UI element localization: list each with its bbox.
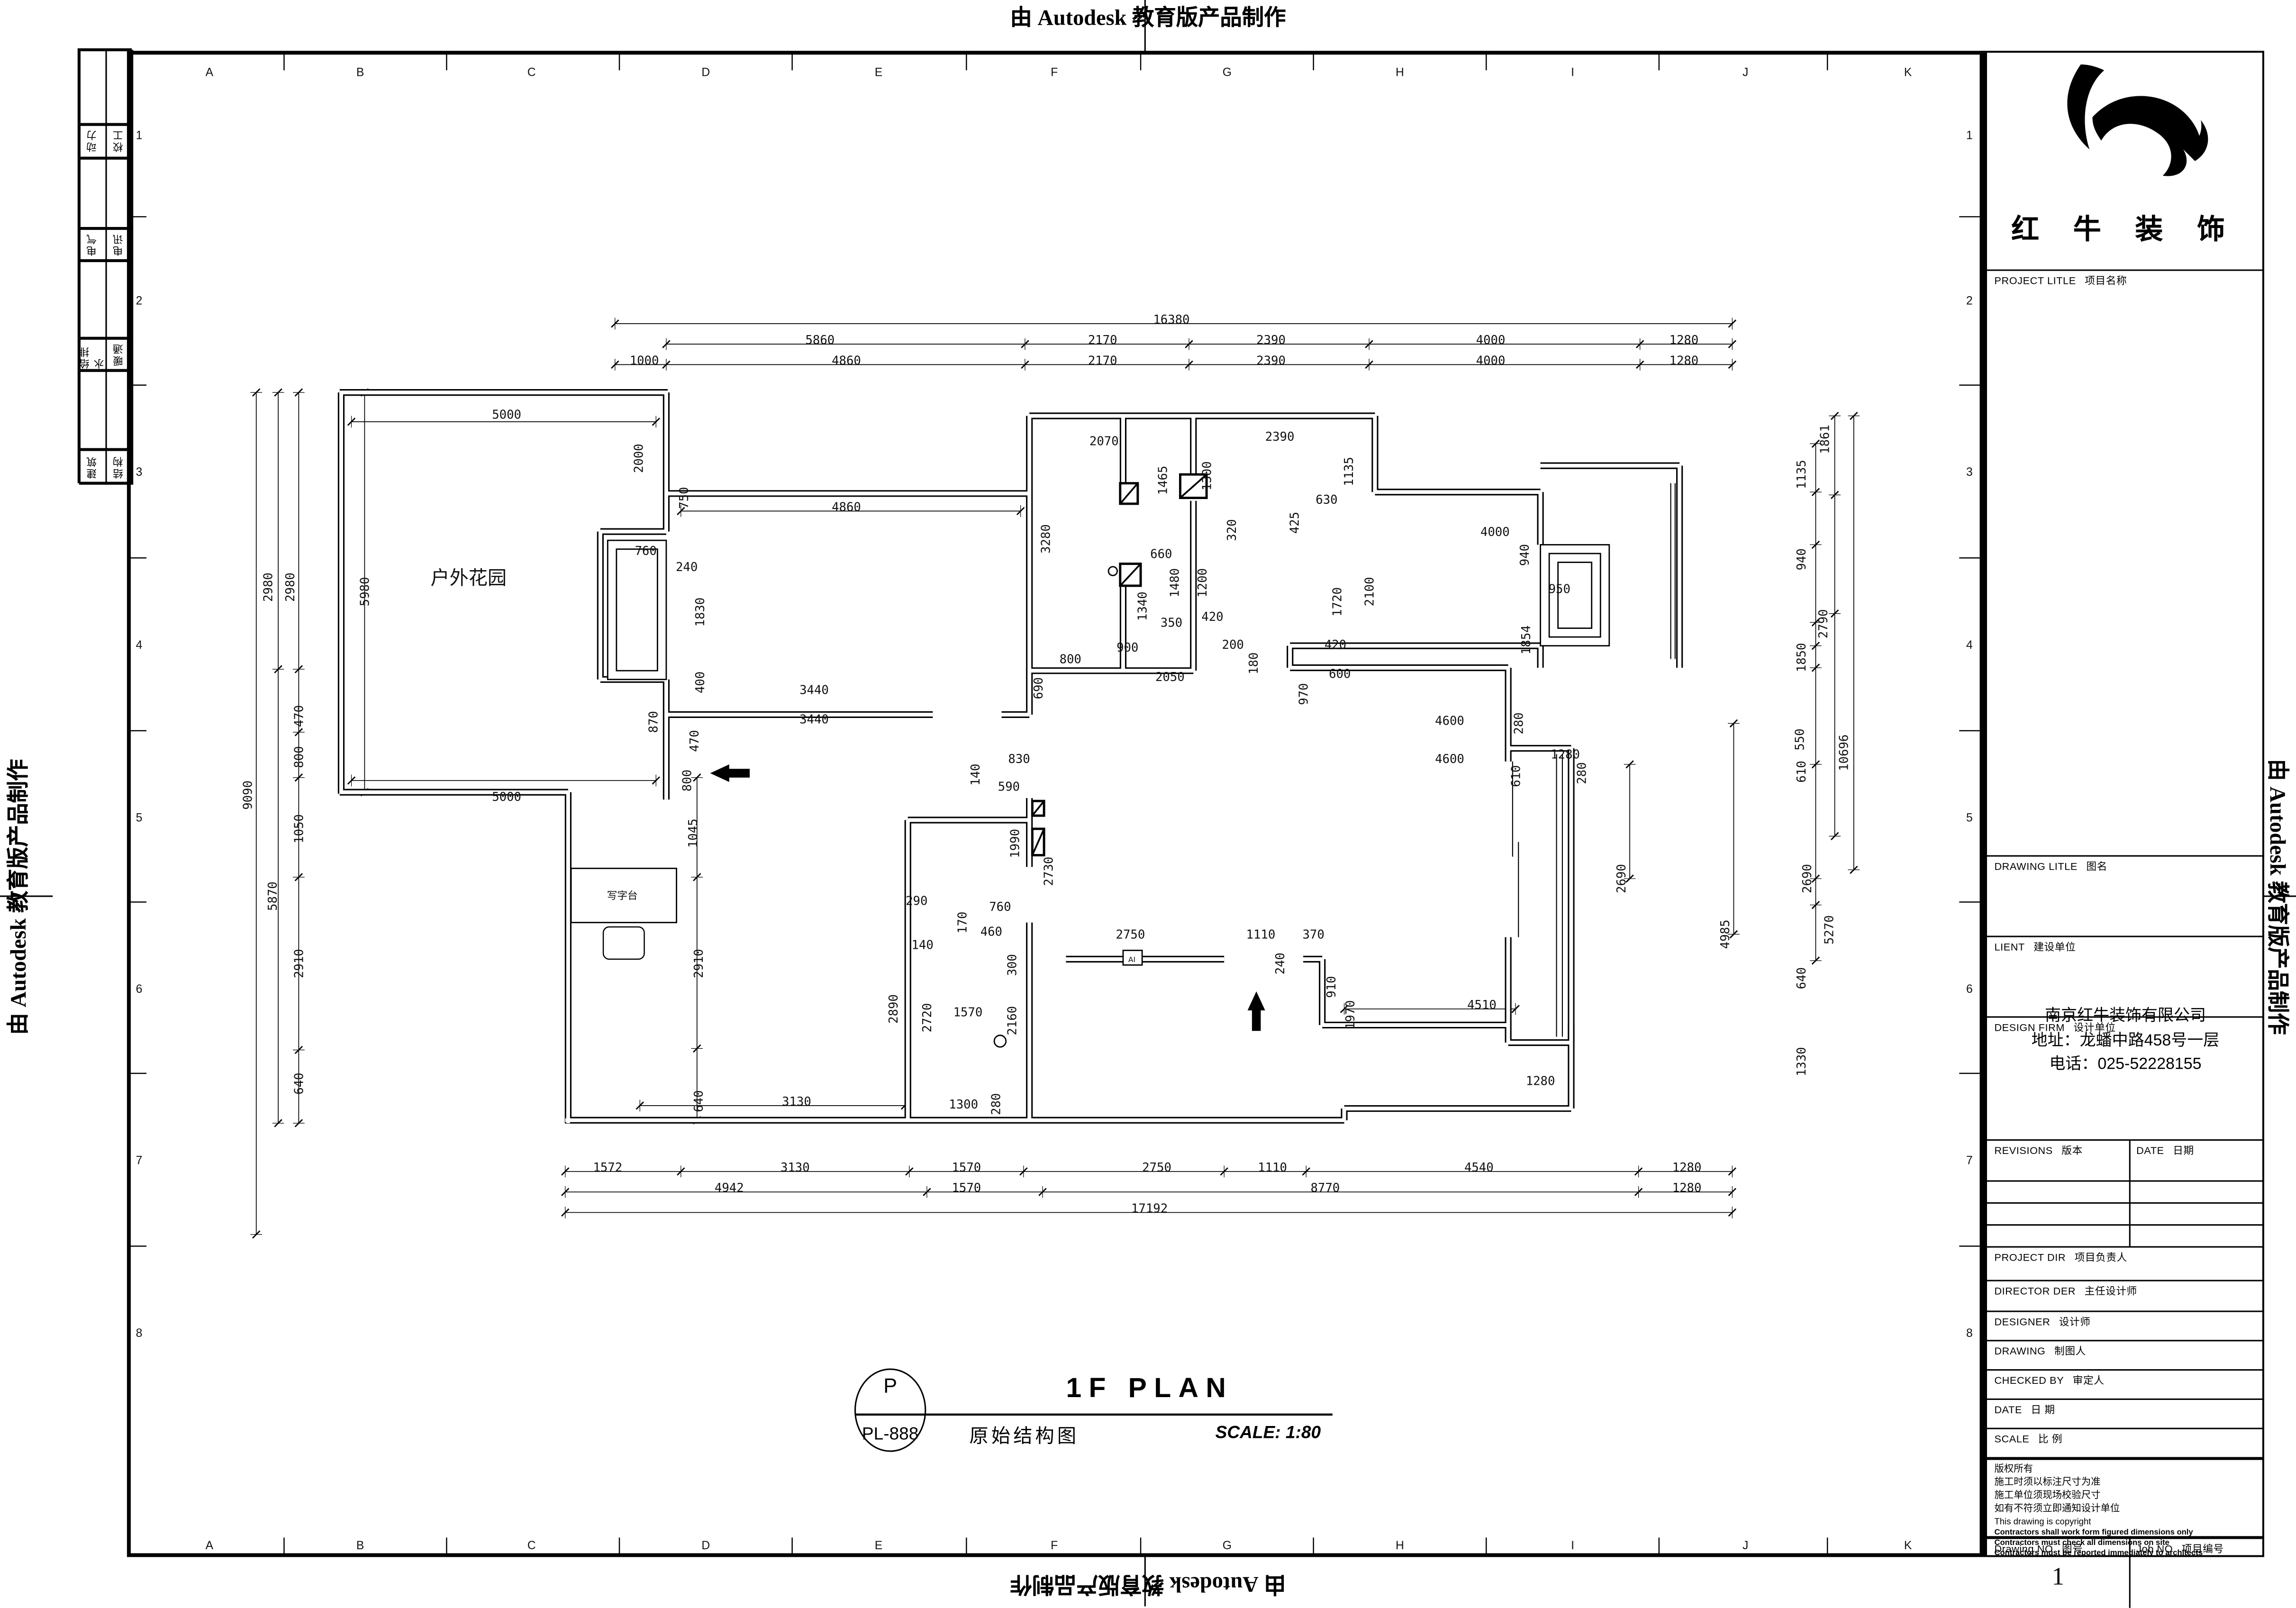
grid-number: 6 xyxy=(136,983,143,996)
dimension-label: 640 xyxy=(1795,967,1809,989)
discipline-label: 校工 xyxy=(105,125,133,158)
row-label-en: Drawing NO xyxy=(1994,1545,2053,1555)
grid-number: 4 xyxy=(136,639,143,652)
dimension-label: 1854 xyxy=(1519,625,1534,654)
dimension-label: 1300 xyxy=(1200,461,1214,491)
row-drawing-no: Drawing NO图号 Job NO项目编号 1 xyxy=(1987,1536,2262,1608)
autodesk-banner-right: 由 Autodesk 教育版产品制作 xyxy=(2263,751,2294,1044)
dimension-label: 5870 xyxy=(266,881,280,911)
dimension-label: 1280 xyxy=(1670,333,1699,347)
copyright-line: 版权所有 xyxy=(1994,1464,2262,1477)
dimension-label: 2980 xyxy=(283,572,298,602)
row-label-en: Job NO xyxy=(2136,1545,2173,1555)
dimension-label: 830 xyxy=(1008,752,1030,766)
grid-number: 7 xyxy=(1966,1154,1973,1167)
dimension-label: 2890 xyxy=(887,994,901,1024)
autodesk-banner-top: 由 Autodesk 教育版产品制作 xyxy=(0,1,2296,32)
dimension-label: 16380 xyxy=(1153,313,1189,327)
row-label-cn: 建设单位 xyxy=(2033,943,2076,954)
dimension-label: 420 xyxy=(1325,638,1346,652)
dimension-label: 630 xyxy=(1316,493,1337,507)
discipline-label: 给排水 xyxy=(79,338,107,371)
dimension-label: 1465 xyxy=(1156,466,1171,495)
dimension-label: 240 xyxy=(1273,953,1288,974)
discipline-cell-empty xyxy=(79,371,107,450)
row-scale: SCALE比 例 xyxy=(1987,1428,2262,1457)
dimension-label: 280 xyxy=(1512,712,1526,734)
dimension-label: 10696 xyxy=(1837,735,1851,771)
dimension-label: 1970 xyxy=(1343,1000,1358,1029)
grid-number: 5 xyxy=(1966,811,1973,824)
dimension-label: 240 xyxy=(676,560,698,574)
sheet-title-cn: 原始结构图 xyxy=(970,1420,1080,1448)
dimension-label: 2170 xyxy=(1088,333,1117,347)
company-name: 南京红牛装饰有限公司 xyxy=(1993,1005,2258,1029)
revision-row-empty xyxy=(1987,1202,2262,1224)
grid-letter: K xyxy=(1904,1539,1912,1552)
dimension-label: 180 xyxy=(1247,653,1261,674)
dimension-label: 940 xyxy=(1518,544,1532,566)
dimension-label: 760 xyxy=(989,900,1011,914)
dimension-label: 1280 xyxy=(1551,748,1580,762)
discipline-cell-empty xyxy=(105,158,133,228)
dimension-label: 1572 xyxy=(593,1161,622,1175)
discipline-table: 动力 校工 电气 电讯 给排水 暖通 建筑 结构 xyxy=(78,48,132,483)
grid-letter: D xyxy=(701,1539,710,1552)
row-designer: DESIGNER设计师 xyxy=(1987,1310,2262,1340)
discipline-cell-empty xyxy=(79,50,107,125)
dimension-label: 1135 xyxy=(1342,457,1356,486)
dimension-label: 950 xyxy=(1549,582,1570,596)
dimension-label: 2690 xyxy=(1615,864,1629,893)
room-label: 写字台 xyxy=(607,890,638,902)
dimension-label: 1050 xyxy=(292,814,307,844)
row-drafter: DRAWING制图人 xyxy=(1987,1340,2262,1369)
copyright-line: 施工时须以标注尺寸为准 xyxy=(1994,1477,2262,1490)
copyright-block: 版权所有 施工时须以标注尺寸为准 施工单位须现场校验尺寸 如有不符须立即通知设计… xyxy=(1987,1457,2262,1536)
company-phone: 电话：025-52228155 xyxy=(1993,1053,2258,1077)
dimension-label: 3440 xyxy=(799,712,829,727)
rednbull-logo xyxy=(2031,62,2222,205)
dimension-label: 760 xyxy=(635,544,656,558)
direction-arrow xyxy=(1248,991,1265,1031)
revision-column-divider xyxy=(2129,1204,2131,1224)
row-label-cn: 图号 xyxy=(2062,1545,2083,1555)
row-label-en: DATE xyxy=(2136,1146,2164,1157)
dimension-label: 2910 xyxy=(692,949,706,978)
dimension-label: 750 xyxy=(677,487,691,509)
dimension-label: 2170 xyxy=(1088,354,1117,368)
sheet-frame xyxy=(129,53,2262,1555)
dimension-label: 800 xyxy=(292,746,307,768)
dimension-label: 425 xyxy=(1288,512,1302,534)
copyright-line: 如有不符须立即通知设计单位 xyxy=(1994,1503,2262,1516)
dimension-label: 320 xyxy=(1225,519,1239,541)
dimension-label: 1340 xyxy=(1135,591,1150,621)
dimension-label: 2050 xyxy=(1155,670,1185,684)
dimension-label: 280 xyxy=(989,1093,1003,1115)
dimension-label: 420 xyxy=(1201,610,1223,624)
dimension-label: 5980 xyxy=(358,577,372,606)
dimension-label: 370 xyxy=(1302,928,1324,942)
row-label-en: SCALE xyxy=(1994,1435,2029,1445)
dimension-label: 280 xyxy=(1575,762,1589,784)
dimension-label: 3130 xyxy=(780,1161,810,1175)
discipline-label: 暖通 xyxy=(105,338,133,371)
row-director: DIRECTOR DER主任设计师 xyxy=(1987,1280,2262,1311)
grid-number: 1 xyxy=(136,129,143,142)
dimension-label: 640 xyxy=(692,1090,706,1112)
row-label-cn: 审定人 xyxy=(2073,1377,2105,1387)
dimension-label: 5270 xyxy=(1823,915,1837,945)
dimension-label: 640 xyxy=(292,1072,307,1094)
dimension-label: 610 xyxy=(1795,761,1809,782)
grid-number: 3 xyxy=(136,466,143,479)
company-info: 南京红牛装饰有限公司 地址：龙蟠中路458号一层 电话：025-52228155 xyxy=(1993,1005,2258,1077)
sheet-code: P xyxy=(871,1373,909,1397)
row-revisions: REVISIONS版本 DATE日期 xyxy=(1987,1139,2262,1181)
dimension-label: 1280 xyxy=(1672,1181,1702,1195)
dimension-label: 8770 xyxy=(1311,1181,1340,1195)
revision-row-empty xyxy=(1987,1224,2262,1246)
grid-letter: E xyxy=(875,1539,882,1552)
revision-column-divider xyxy=(2129,1182,2131,1202)
dimension-label: 470 xyxy=(688,730,702,752)
dimension-label: 2160 xyxy=(1005,1006,1019,1036)
grid-number: 5 xyxy=(136,811,143,824)
fixture-outline xyxy=(617,549,658,671)
dimension-label: 1280 xyxy=(1672,1161,1702,1175)
grid-letter: I xyxy=(1571,1539,1574,1552)
dimension-label: 1830 xyxy=(693,598,708,627)
direction-arrow xyxy=(710,764,750,782)
discipline-label: 动力 xyxy=(79,125,107,158)
dimension-label: 400 xyxy=(693,672,708,693)
row-label-en: DRAWING LITLE xyxy=(1994,863,2077,873)
grid-letter: A xyxy=(206,66,214,79)
grid-number: 7 xyxy=(136,1154,143,1167)
dimension-label: 4942 xyxy=(715,1181,744,1195)
dimension-label: 2750 xyxy=(1116,928,1145,942)
dimension-label: 660 xyxy=(1150,547,1172,561)
dimension-label: 170 xyxy=(955,911,970,933)
dimension-label: 2390 xyxy=(1256,354,1286,368)
dimension-label: 460 xyxy=(980,925,1002,939)
row-label-en: REVISIONS xyxy=(1994,1146,2052,1157)
autodesk-banner-bottom: 由 Autodesk 教育版产品制作 xyxy=(0,1570,2296,1600)
discipline-cell-empty xyxy=(79,158,107,228)
row-date: DATE日 期 xyxy=(1987,1399,2262,1428)
grid-letter: G xyxy=(1223,1539,1232,1552)
sheet-scale: SCALE: 1:80 xyxy=(1216,1422,1321,1442)
dimension-label: 2690 xyxy=(1800,864,1815,893)
row-label-cn: 图名 xyxy=(2086,863,2107,873)
drawing-sheet: AABBCCDDEEFFGGHHIIJJKK112233445566778816… xyxy=(0,0,2296,1607)
dimension-label: 4000 xyxy=(1480,525,1510,539)
grid-number: 1 xyxy=(1966,129,1973,142)
dimension-label: 1045 xyxy=(686,818,700,848)
row-label-cn: 比 例 xyxy=(2038,1435,2062,1445)
copyright-line: This drawing is copyright xyxy=(1994,1517,2262,1528)
row-label-cn: 项目名称 xyxy=(2085,277,2127,287)
dimension-label: 4985 xyxy=(1718,919,1733,949)
row-label-en: DATE xyxy=(1994,1406,2022,1416)
dimension-label: 1720 xyxy=(1330,587,1344,617)
dimension-label: 970 xyxy=(1297,683,1311,705)
dimension-label: 5000 xyxy=(492,790,521,804)
room-label: AI xyxy=(1128,955,1135,964)
dimension-label: 1110 xyxy=(1258,1161,1287,1175)
grid-letter: K xyxy=(1904,66,1912,79)
grid-number: 6 xyxy=(1966,983,1973,996)
dimension-label: 4000 xyxy=(1476,333,1506,347)
dimension-label: 2070 xyxy=(1089,434,1119,448)
row-label-en: PROJECT DIR xyxy=(1994,1254,2066,1264)
row-project-dir: PROJECT DIR项目负责人 xyxy=(1987,1246,2262,1280)
dimension-label: 1000 xyxy=(630,354,659,368)
discipline-cell-empty xyxy=(105,371,133,450)
dimension-label: 940 xyxy=(1795,548,1809,570)
dimension-label: 600 xyxy=(1329,667,1351,681)
dimension-label: 4860 xyxy=(832,500,861,514)
dimension-label: 4540 xyxy=(1464,1161,1494,1175)
dimension-label: 140 xyxy=(969,763,983,785)
grid-number: 3 xyxy=(1966,466,1973,479)
row-label-en: DIRECTOR DER xyxy=(1994,1287,2076,1298)
dimension-label: 1480 xyxy=(1168,568,1182,598)
dimension-label: 1280 xyxy=(1670,354,1699,368)
row-label-en: LIENT xyxy=(1994,943,2024,954)
dimension-label: 3440 xyxy=(799,683,829,698)
grid-letter: J xyxy=(1742,66,1748,79)
row-label-cn: 日 期 xyxy=(2031,1406,2055,1416)
dimension-label: 800 xyxy=(1060,653,1081,667)
dimension-label: 910 xyxy=(1325,976,1339,998)
dimension-label: 2000 xyxy=(632,444,646,473)
row-label-cn: 主任设计师 xyxy=(2085,1287,2137,1298)
row-label-cn: 版本 xyxy=(2061,1146,2083,1157)
dimension-label: 9090 xyxy=(241,781,255,810)
grid-letter: B xyxy=(356,66,364,79)
grid-letter: H xyxy=(1396,1539,1404,1552)
row-label-cn: 项目负责人 xyxy=(2075,1254,2127,1264)
company-address: 地址：龙蟠中路458号一层 xyxy=(1993,1029,2258,1053)
dimension-label: 2790 xyxy=(1816,609,1831,638)
fixture-circle xyxy=(1108,567,1117,576)
dimension-label: 1280 xyxy=(1526,1074,1555,1089)
grid-letter: D xyxy=(701,66,710,79)
dimension-label: 1990 xyxy=(1008,829,1023,858)
row-label-cn: 设计师 xyxy=(2059,1318,2091,1328)
discipline-label: 结构 xyxy=(105,450,133,485)
copyright-line: 施工单位须现场校验尺寸 xyxy=(1994,1490,2262,1503)
row-project-title: PROJECT LITLE项目名称 xyxy=(1987,270,2262,855)
dimension-label: 2980 xyxy=(262,572,276,602)
room-label: 户外花园 xyxy=(430,567,507,589)
grid-number: 4 xyxy=(1966,639,1973,652)
dimension-label: 2390 xyxy=(1256,333,1286,347)
grid-number: 8 xyxy=(1966,1327,1973,1340)
dimension-label: 4510 xyxy=(1467,998,1497,1012)
discipline-label: 建筑 xyxy=(79,450,107,485)
dimension-label: 550 xyxy=(1793,728,1807,750)
grid-letter: F xyxy=(1051,1539,1058,1552)
dimension-label: 2390 xyxy=(1265,430,1295,444)
grid-number: 2 xyxy=(136,295,143,308)
dimension-label: 590 xyxy=(998,780,1020,794)
dimension-label: 1200 xyxy=(1196,568,1210,598)
discipline-cell-empty xyxy=(105,261,133,338)
discipline-label: 电讯 xyxy=(105,228,133,261)
grid-letter: C xyxy=(527,66,536,79)
row-label-en: DESIGNER xyxy=(1994,1318,2050,1328)
sheet-title-en: 1F PLAN xyxy=(1066,1373,1233,1406)
dimension-label: 2910 xyxy=(292,949,307,978)
chair-symbol xyxy=(603,927,644,959)
dimension-label: 4600 xyxy=(1435,714,1464,728)
dimension-label: 1135 xyxy=(1795,460,1809,489)
dimension-label: 470 xyxy=(292,705,307,727)
dimension-label: 1110 xyxy=(1246,928,1276,942)
brand-row xyxy=(1987,217,2262,269)
title-block: 红 牛 装 饰 PROJECT LITLE项目名称 DRAWING LITLE图… xyxy=(1980,53,2262,1555)
dimension-label: 800 xyxy=(680,770,694,791)
discipline-label: 电气 xyxy=(79,228,107,261)
dimension-label: 1570 xyxy=(952,1161,981,1175)
dimension-label: 17192 xyxy=(1131,1201,1168,1216)
row-label-cn: 项目编号 xyxy=(2182,1545,2224,1555)
dimension-label: 3280 xyxy=(1039,524,1053,554)
dimension-label: 1570 xyxy=(952,1181,981,1195)
dimension-label: 2730 xyxy=(1042,857,1056,886)
dimension-label: 2100 xyxy=(1362,577,1377,606)
dimension-label: 870 xyxy=(646,711,661,733)
row-checked-by: CHECKED BY审定人 xyxy=(1987,1369,2262,1399)
dimension-label: 3130 xyxy=(782,1095,811,1109)
dimension-label: 350 xyxy=(1161,616,1182,630)
dimension-label: 610 xyxy=(1509,765,1523,787)
dimension-label: 5860 xyxy=(805,333,835,347)
row-label-cn: 日期 xyxy=(2173,1146,2194,1157)
grid-letter: J xyxy=(1742,1539,1748,1552)
drawing-no-value: 1 xyxy=(1987,1563,2129,1592)
dimension-label: 4860 xyxy=(832,354,861,368)
grid-number: 2 xyxy=(1966,295,1973,308)
discipline-cell-empty xyxy=(105,50,133,125)
dimension-label: 2720 xyxy=(920,1003,935,1033)
grid-letter: A xyxy=(206,1539,214,1552)
grid-letter: H xyxy=(1396,66,1404,79)
row-label-en: CHECKED BY xyxy=(1994,1377,2064,1387)
dimension-label: 4000 xyxy=(1476,354,1506,368)
row-drawing-title: DRAWING LITLE图名 xyxy=(1987,855,2262,936)
grid-letter: E xyxy=(875,66,882,79)
dimension-label: 290 xyxy=(906,894,927,908)
row-label-en: DRAWING xyxy=(1994,1347,2045,1358)
dimension-label: 2750 xyxy=(1142,1161,1171,1175)
dimension-label: 1861 xyxy=(1818,425,1832,454)
sheet-number: PL-888 xyxy=(857,1423,924,1444)
grid-letter: B xyxy=(356,1539,364,1552)
dimension-label: 1570 xyxy=(953,1005,983,1019)
grid-letter: G xyxy=(1223,66,1232,79)
autodesk-banner-left: 由 Autodesk 教育版产品制作 xyxy=(2,751,33,1044)
discipline-cell-empty xyxy=(79,261,107,338)
dimension-label: 1300 xyxy=(949,1098,978,1112)
dimension-label: 4600 xyxy=(1435,752,1464,766)
revision-row-empty xyxy=(1987,1180,2262,1202)
dimension-label: 900 xyxy=(1116,641,1138,655)
dimension-label: 1330 xyxy=(1795,1047,1809,1076)
dimension-label: 140 xyxy=(911,938,933,952)
grid-number: 8 xyxy=(136,1327,143,1340)
dimension-label: 300 xyxy=(1005,954,1019,976)
row-label-en: PROJECT LITLE xyxy=(1994,277,2076,287)
grid-letter: F xyxy=(1051,66,1058,79)
dimension-label: 5000 xyxy=(492,408,521,422)
fixture-circle xyxy=(994,1036,1006,1047)
row-label-cn: 制图人 xyxy=(2054,1347,2086,1358)
grid-letter: I xyxy=(1571,66,1574,79)
dimension-label: 200 xyxy=(1222,638,1244,652)
revision-column-divider xyxy=(2129,1226,2131,1246)
dimension-label: 690 xyxy=(1032,677,1046,699)
dimension-label: 1850 xyxy=(1795,643,1809,672)
grid-letter: C xyxy=(527,1539,536,1552)
